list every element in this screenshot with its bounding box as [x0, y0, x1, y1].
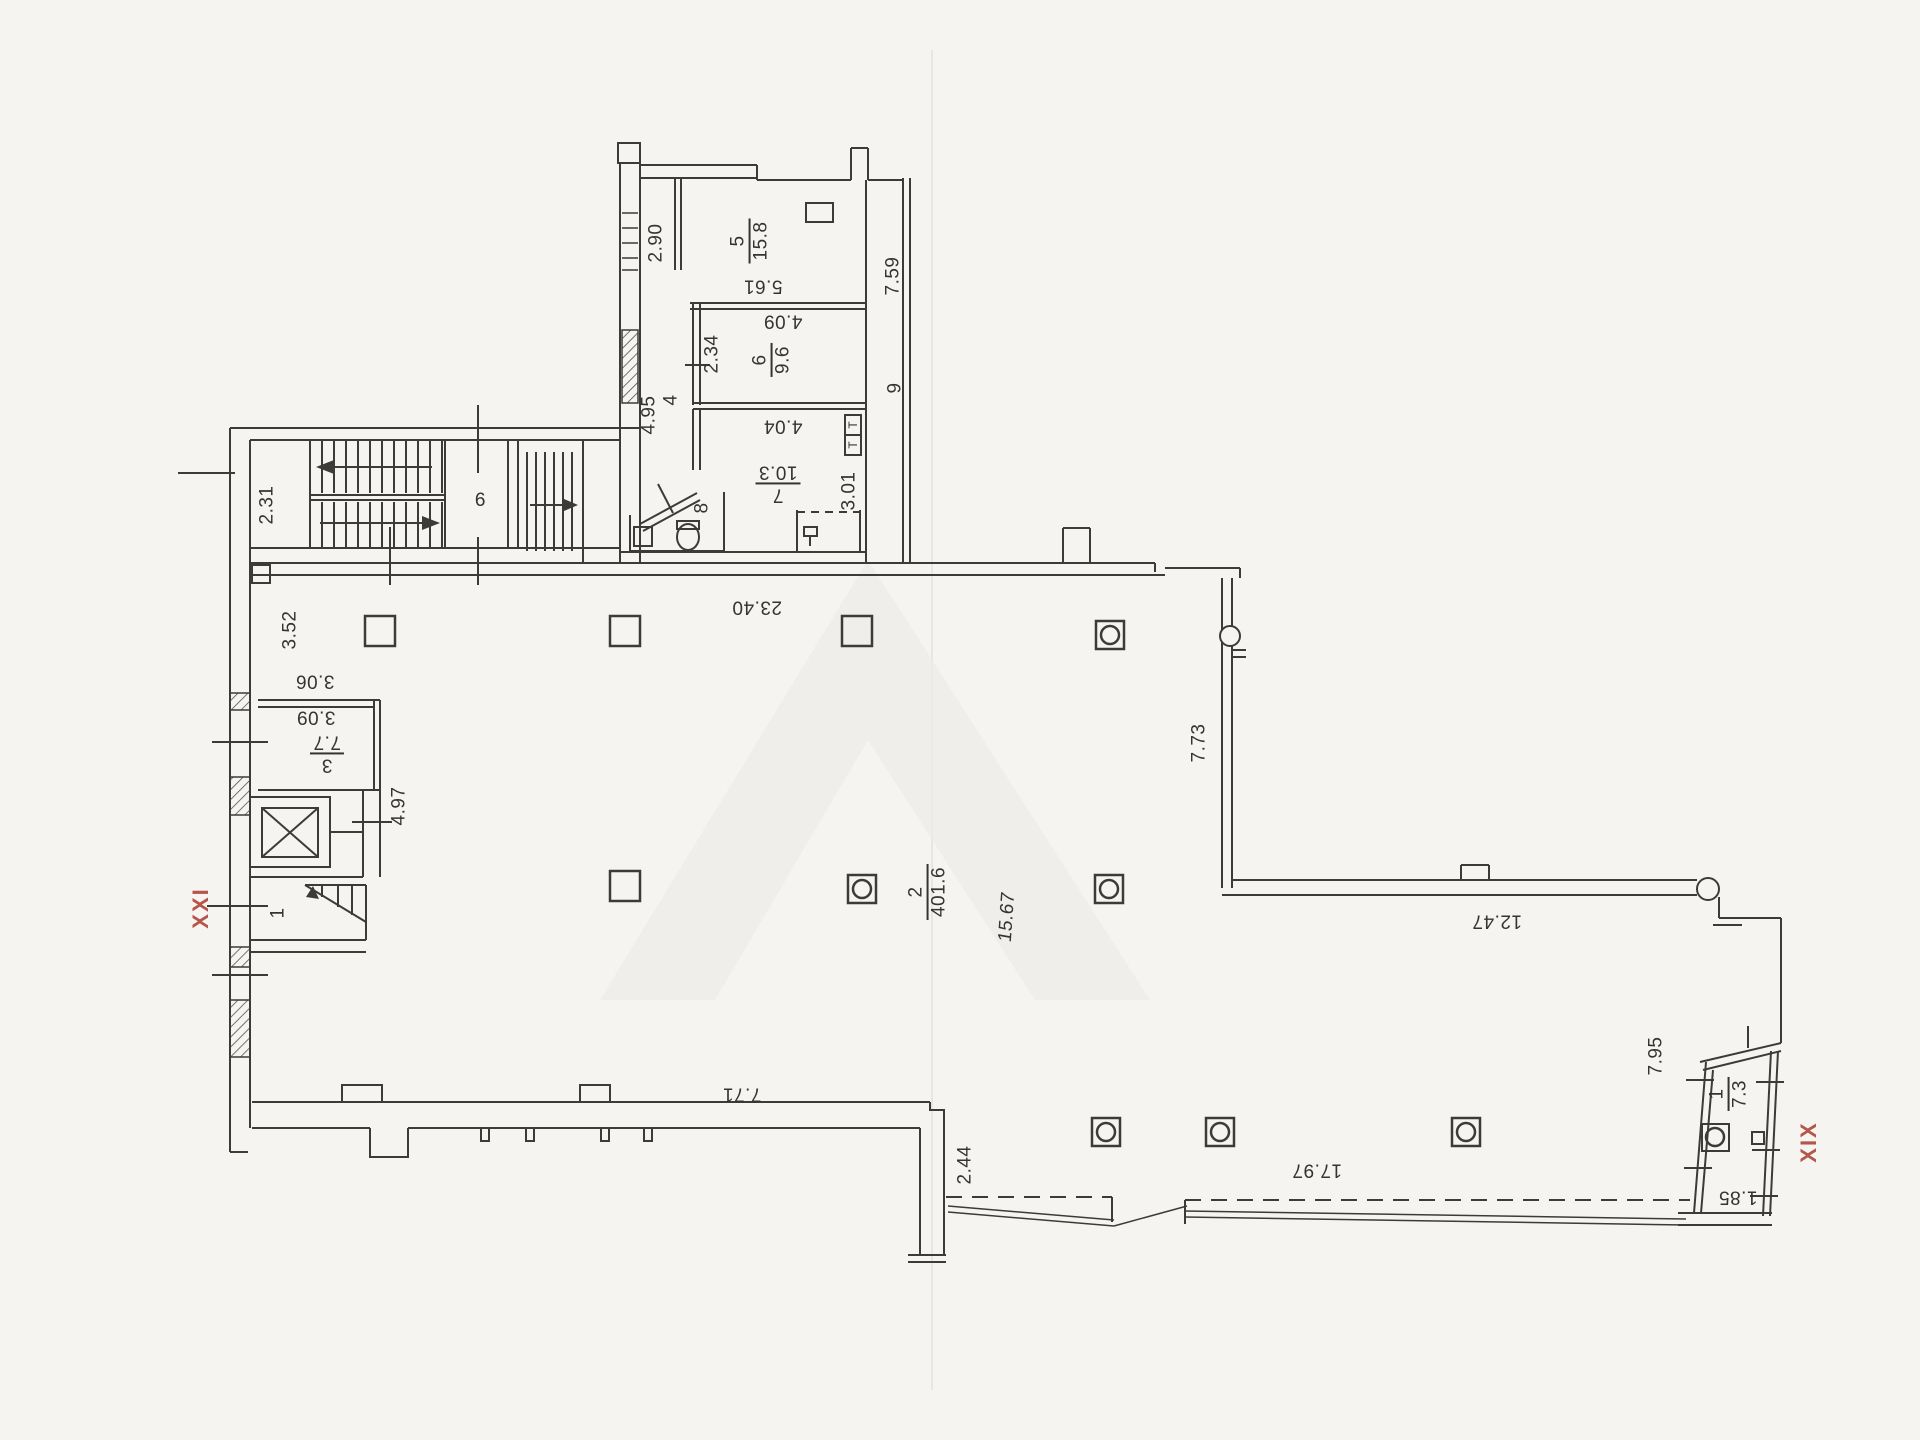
room-7-label: 710.3	[756, 462, 801, 505]
duct-label-1: Т	[847, 421, 859, 428]
dim-2-44: 2.44	[956, 1146, 975, 1185]
dim-12-47: 12.47	[1472, 912, 1522, 931]
dim-5-61: 5.61	[744, 277, 783, 296]
dim-4-95: 4.95	[640, 396, 659, 435]
room-1-label: 1	[269, 907, 288, 918]
dim-3-06: 3.06	[296, 672, 335, 691]
floor-plan-drawing	[0, 0, 1920, 1440]
dim-4-97: 4.97	[390, 787, 409, 826]
wall-circle-markers	[1220, 626, 1719, 900]
room-5-number: 5	[729, 235, 749, 246]
room-5-area: 15.8	[749, 219, 772, 264]
dim-3-09: 3.09	[297, 708, 336, 727]
room-6-number: 6	[751, 354, 771, 365]
room-5-label: 515.8	[729, 219, 772, 264]
room-9-strip-label: 9	[886, 382, 905, 393]
dim-3-01: 3.01	[840, 472, 859, 511]
dim-7-73: 7.73	[1190, 724, 1209, 763]
room-7-number: 7	[772, 485, 783, 505]
dim-1-85: 1.85	[1719, 1188, 1758, 1207]
dim-4-09: 4.09	[764, 312, 803, 331]
dim-2-90: 2.90	[647, 224, 666, 263]
room-3-number: 3	[321, 755, 332, 775]
room-8-label: 8	[693, 502, 712, 513]
room-7-area: 10.3	[756, 462, 801, 485]
dim-7-71: 7.71	[723, 1085, 762, 1104]
room-3-area: 7.7	[310, 732, 344, 755]
room-6-area: 9.6	[771, 343, 794, 377]
section-mark-xxi: XXI	[190, 887, 212, 928]
duct-label-2: Т	[847, 441, 859, 448]
room-2-label: 2401.6	[907, 864, 950, 920]
dim-7-95: 7.95	[1647, 1037, 1666, 1076]
dim-15-67: 15.67	[996, 890, 1018, 943]
dim-2-34: 2.34	[703, 335, 722, 374]
section-mark-xix: XIX	[1798, 1121, 1820, 1162]
room-9-stair-label: 9	[474, 489, 485, 508]
watermark	[600, 560, 1150, 1000]
dim-17-97: 17.97	[1292, 1161, 1342, 1180]
room-3-label: 37.7	[310, 732, 344, 775]
floor-plan-page: 2.31 9 2.90 515.8 5.61 4.09 2.34 69.6 4.…	[0, 0, 1920, 1440]
dim-4-04: 4.04	[764, 417, 803, 436]
room-6-label: 69.6	[751, 343, 794, 377]
dim-3-52: 3.52	[281, 611, 300, 650]
room-x1-label: 17.3	[1708, 1077, 1751, 1111]
dim-7-59: 7.59	[884, 257, 903, 296]
room-2-area: 401.6	[927, 864, 950, 920]
room-x1-area: 7.3	[1728, 1077, 1751, 1111]
room-x1-number: 1	[1708, 1088, 1728, 1099]
room-4-label: 4	[662, 394, 681, 405]
dim-2-31: 2.31	[258, 486, 277, 525]
room-2-number: 2	[907, 886, 927, 897]
dim-23-40: 23.40	[732, 598, 782, 617]
wall-lines	[178, 143, 1784, 1262]
